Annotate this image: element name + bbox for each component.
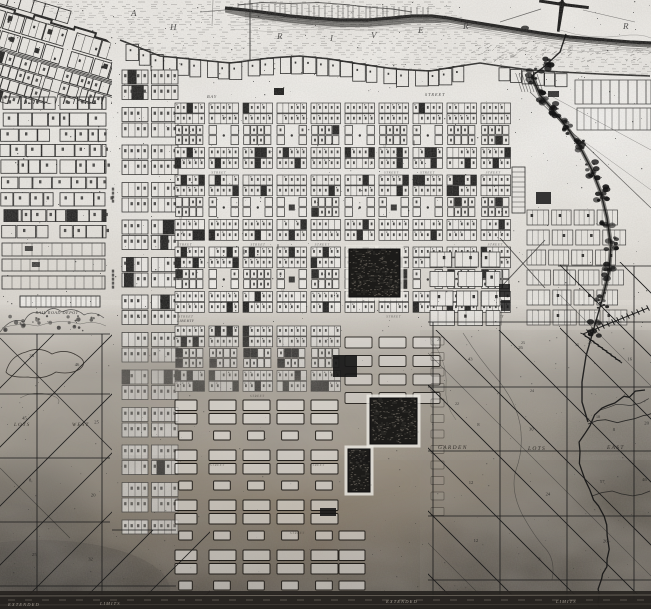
svg-text:30: 30 [529,427,534,432]
svg-text:24: 24 [530,388,534,393]
svg-text:25: 25 [32,552,37,557]
svg-text:18: 18 [596,414,600,419]
svg-text:32: 32 [88,557,93,562]
svg-text:20: 20 [644,421,649,426]
svg-text:46: 46 [75,362,80,367]
svg-text:25: 25 [588,339,593,344]
svg-text:STREET: STREET [250,394,265,398]
svg-text:STREET: STREET [210,463,225,467]
svg-text:G A R D E N: G A R D E N [438,445,467,451]
svg-text:24: 24 [546,491,551,496]
svg-text:46: 46 [642,477,647,482]
svg-text:15: 15 [575,342,579,347]
svg-text:E X T E N D E D: E X T E N D E D [7,602,40,607]
svg-text:43: 43 [468,356,473,361]
svg-text:STREET: STREET [310,463,325,467]
svg-text:25: 25 [521,340,525,345]
svg-text:25: 25 [94,420,99,425]
svg-text:12: 12 [469,480,474,485]
svg-text:57: 57 [600,479,605,484]
svg-text:38: 38 [29,353,34,358]
svg-text:L O T S: L O T S [13,422,30,428]
svg-text:26: 26 [518,345,523,350]
svg-text:W E S T: W E S T [72,422,89,428]
svg-text:22: 22 [455,401,459,406]
svg-text:45: 45 [22,415,27,420]
svg-text:16: 16 [627,357,632,362]
svg-text:12: 12 [474,538,479,543]
svg-text:21: 21 [437,337,441,342]
svg-text:L O T S: L O T S [527,446,545,452]
svg-text:E A S T: E A S T [606,445,624,451]
svg-text:STREET: STREET [290,531,305,535]
svg-text:L I M I T S: L I M I T S [99,601,120,606]
svg-text:20: 20 [91,493,96,498]
svg-text:26: 26 [603,538,608,543]
